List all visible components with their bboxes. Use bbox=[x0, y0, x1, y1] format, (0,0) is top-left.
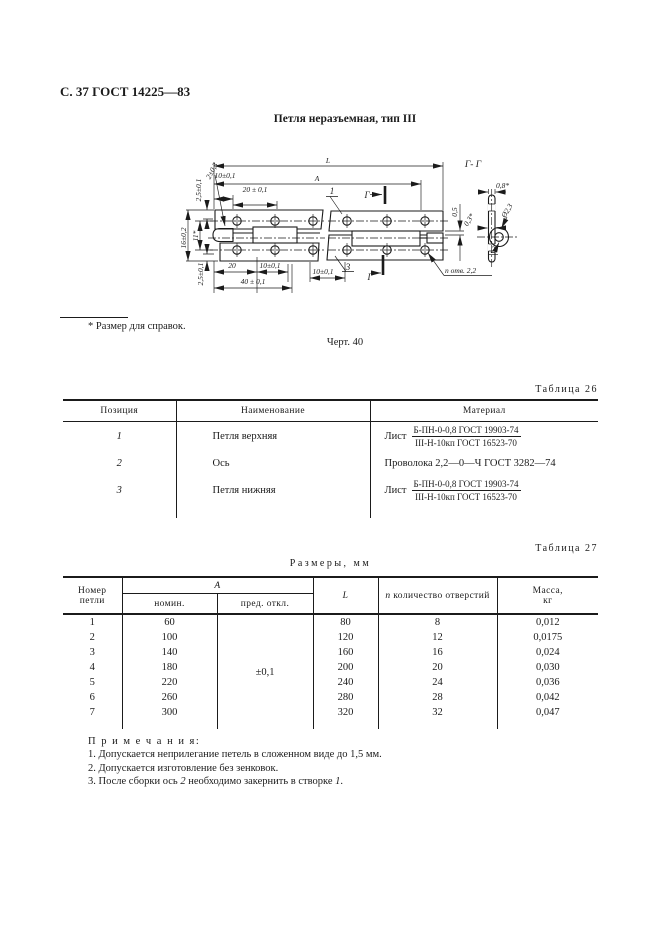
note-item: 3. После сборки ось 2 необходимо закерни… bbox=[88, 775, 578, 788]
l-value: 200 bbox=[313, 660, 378, 675]
a-nominal: 180 bbox=[122, 660, 217, 675]
section-mark-top: Г bbox=[363, 190, 370, 200]
holes-note: п отв. 2,2 bbox=[445, 266, 476, 275]
holes-count: 16 bbox=[378, 645, 497, 660]
material-fraction: Б-ПН-0-0,8 ГОСТ 19903-74III-Н-10кп ГОСТ … bbox=[412, 425, 521, 448]
table-row: 7 300 320 32 0,047 bbox=[63, 705, 598, 720]
dim-label-40: 40 ± 0,1 bbox=[241, 277, 266, 286]
mass-value: 0,012 bbox=[497, 614, 598, 630]
table27-title: Размеры, мм bbox=[63, 558, 598, 569]
dim-label-20-top: 20 ± 0,1 bbox=[243, 185, 268, 194]
deviation-value: ±0,1 bbox=[217, 614, 313, 729]
material-fraction: Б-ПН-0-0,8 ГОСТ 19903-74III-Н-10кп ГОСТ … bbox=[412, 479, 521, 502]
material-denominator: III-Н-10кп ГОСТ 16523-70 bbox=[412, 437, 521, 448]
col-holes-count: n количество отверстий bbox=[378, 577, 497, 614]
holes-count: 12 bbox=[378, 630, 497, 645]
table-row: 2 100 120 12 0,0175 bbox=[63, 630, 598, 645]
part-label-1: 1 bbox=[330, 186, 335, 196]
table-row: 4 180 200 20 0,030 bbox=[63, 660, 598, 675]
col-hinge-number: Номерпетли bbox=[63, 577, 122, 614]
col-position: Позиция bbox=[63, 400, 176, 422]
a-nominal: 100 bbox=[122, 630, 217, 645]
knuckle-curl bbox=[213, 229, 233, 242]
holes-count: 20 bbox=[378, 660, 497, 675]
table-row: 2 Ось Проволока 2,2—0—Ч ГОСТ 3282—74 bbox=[63, 452, 598, 476]
l-value: 280 bbox=[313, 690, 378, 705]
mass-value: 0,042 bbox=[497, 690, 598, 705]
table-row: 3 140 160 16 0,024 bbox=[63, 645, 598, 660]
col-mass: Масса,кг bbox=[497, 577, 598, 614]
table-row: 1 Петля верхняя ЛистБ-ПН-0-0,8 ГОСТ 1990… bbox=[63, 422, 598, 452]
material-denominator: III-Н-10кп ГОСТ 16523-70 bbox=[412, 491, 521, 502]
col-nominal: номин. bbox=[122, 594, 217, 615]
holes-count: 8 bbox=[378, 614, 497, 630]
hinge-number: 5 bbox=[63, 675, 122, 690]
l-value: 80 bbox=[313, 614, 378, 630]
dim-label-25-bottom: 2,5±0,1 bbox=[196, 263, 205, 286]
position-value: 2 bbox=[63, 452, 176, 476]
holes-count: 28 bbox=[378, 690, 497, 705]
dim-label-d23: Ø2,3 bbox=[499, 202, 515, 220]
material-value: Проволока 2,2—0—Ч ГОСТ 3282—74 bbox=[370, 452, 598, 476]
a-nominal: 60 bbox=[122, 614, 217, 630]
mass-value: 0,0175 bbox=[497, 630, 598, 645]
page-header: С. 37 ГОСТ 14225—83 bbox=[60, 84, 190, 100]
a-nominal: 140 bbox=[122, 645, 217, 660]
footnote-rule bbox=[60, 317, 128, 318]
section-mark-bottom: Г bbox=[366, 272, 373, 282]
part-name: Петля верхняя bbox=[176, 422, 370, 452]
material-value: ЛистБ-ПН-0-0,8 ГОСТ 19903-74III-Н-10кп Г… bbox=[370, 476, 598, 506]
col-material: Материал bbox=[370, 400, 598, 422]
dim-label-11: 11* bbox=[191, 230, 200, 241]
l-value: 160 bbox=[313, 645, 378, 660]
table-spacer-row bbox=[63, 506, 598, 518]
table27-header-row-1: Номерпетли А L n количество отверстий Ма… bbox=[63, 577, 598, 594]
dim-label-20-bottom: 20 bbox=[228, 261, 236, 270]
table26-caption: Таблица 26 bbox=[398, 384, 598, 395]
a-nominal: 260 bbox=[122, 690, 217, 705]
mass-value: 0,030 bbox=[497, 660, 598, 675]
technical-drawing: L А 10±0,1 20 ± 0,1 2±0,3 2,5±0,1 16±0,2… bbox=[180, 148, 520, 323]
note-item: 2. Допускается изготовление без зенковок… bbox=[88, 762, 578, 775]
notes-block: П р и м е ч а н и я: 1. Допускается непр… bbox=[88, 735, 578, 789]
a-nominal: 300 bbox=[122, 705, 217, 720]
hinge-front-view bbox=[208, 210, 450, 261]
a-nominal: 220 bbox=[122, 675, 217, 690]
col-A: А bbox=[122, 577, 313, 594]
col-name: Наименование bbox=[176, 400, 370, 422]
position-value: 3 bbox=[63, 476, 176, 506]
table-27: Номерпетли А L n количество отверстий Ма… bbox=[63, 576, 598, 729]
dim-label-25-top: 2,5±0,1 bbox=[194, 179, 203, 202]
l-value: 240 bbox=[313, 675, 378, 690]
hinge-section-view bbox=[477, 189, 517, 269]
material-word: Лист bbox=[385, 485, 407, 496]
dim-label-10-bottom: 10±0,1 bbox=[260, 261, 281, 270]
figure-caption: Черт. 40 bbox=[180, 337, 510, 348]
mass-value: 0,024 bbox=[497, 645, 598, 660]
hinge-number: 6 bbox=[63, 690, 122, 705]
material-value: ЛистБ-ПН-0-0,8 ГОСТ 19903-74III-Н-10кп Г… bbox=[370, 422, 598, 452]
table-row: 3 Петля нижняя ЛистБ-ПН-0-0,8 ГОСТ 19903… bbox=[63, 476, 598, 506]
dim-label-10-right: 10±0,1 bbox=[313, 267, 334, 276]
mass-value: 0,036 bbox=[497, 675, 598, 690]
table-row: 6 260 280 28 0,042 bbox=[63, 690, 598, 705]
section-title: Г- Г bbox=[464, 160, 482, 170]
table27-caption: Таблица 27 bbox=[398, 543, 598, 554]
position-value: 1 bbox=[63, 422, 176, 452]
dim-label-05: 0,5 bbox=[450, 207, 459, 217]
hinge-number: 4 bbox=[63, 660, 122, 675]
col-L: L bbox=[313, 577, 378, 614]
dim-label-16: 16±0,2 bbox=[180, 227, 188, 248]
holes-count: 32 bbox=[378, 705, 497, 720]
notes-heading: П р и м е ч а н и я: bbox=[88, 735, 578, 748]
table-row: 1 60 ±0,1 80 8 0,012 bbox=[63, 614, 598, 630]
dim-label-10-top: 10±0,1 bbox=[215, 171, 236, 180]
dim-label-08: 0,8* bbox=[496, 181, 509, 190]
page-title: Петля неразъемная, тип III bbox=[180, 113, 510, 125]
material-numerator: Б-ПН-0-0,8 ГОСТ 19903-74 bbox=[412, 425, 521, 437]
holes-count: 24 bbox=[378, 675, 497, 690]
part-name: Ось bbox=[176, 452, 370, 476]
l-value: 120 bbox=[313, 630, 378, 645]
table26-header-row: Позиция Наименование Материал bbox=[63, 400, 598, 422]
col-deviation: пред. откл. bbox=[217, 594, 313, 615]
l-value: 320 bbox=[313, 705, 378, 720]
footnote: * Размер для справок. bbox=[88, 321, 186, 332]
part-label-3: 3 bbox=[345, 262, 351, 272]
dim-label-03: 0,3* bbox=[462, 212, 477, 228]
hinge-number: 7 bbox=[63, 705, 122, 720]
note-item: 1. Допускается неприлегание петель в сло… bbox=[88, 748, 578, 761]
material-numerator: Б-ПН-0-0,8 ГОСТ 19903-74 bbox=[412, 479, 521, 491]
hinge-number: 1 bbox=[63, 614, 122, 630]
dim-label-A: А bbox=[314, 174, 320, 183]
table-spacer-row bbox=[63, 720, 598, 729]
table-26: Позиция Наименование Материал 1 Петля ве… bbox=[63, 399, 598, 518]
document-page: С. 37 ГОСТ 14225—83 Петля неразъемная, т… bbox=[0, 0, 661, 936]
material-word: Лист bbox=[385, 431, 407, 442]
hinge-number: 3 bbox=[63, 645, 122, 660]
mass-value: 0,047 bbox=[497, 705, 598, 720]
table-row: 5 220 240 24 0,036 bbox=[63, 675, 598, 690]
hinge-number: 2 bbox=[63, 630, 122, 645]
dim-label-L: L bbox=[325, 156, 330, 165]
part-name: Петля нижняя bbox=[176, 476, 370, 506]
part-label-2: 2 bbox=[491, 245, 496, 255]
